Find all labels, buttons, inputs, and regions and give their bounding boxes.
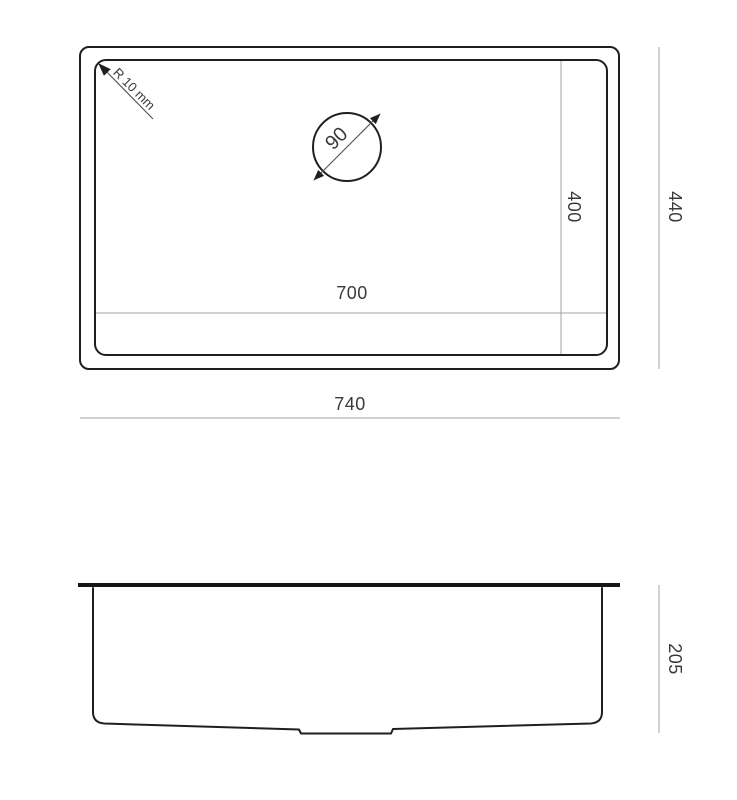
inner-width-label: 700 <box>336 283 368 303</box>
drain-diameter-line-lower <box>314 147 347 180</box>
inner-height-label: 400 <box>564 191 584 223</box>
technical-drawing: R 10 mm 90 400 440 700 740 <box>0 0 737 800</box>
sink-outer-edge <box>80 47 619 369</box>
top-view: R 10 mm 90 400 440 700 740 <box>80 47 685 418</box>
drawing-canvas: R 10 mm 90 400 440 700 740 <box>0 0 737 800</box>
basin-profile <box>93 588 602 734</box>
corner-radius-label: R 10 mm <box>110 65 158 113</box>
sink-bowl-edge <box>95 60 607 355</box>
outer-width-label: 740 <box>334 394 366 414</box>
drain-diameter-line-upper <box>347 114 380 147</box>
drain-diameter-label: 90 <box>321 123 352 154</box>
depth-label: 205 <box>665 643 685 675</box>
outer-height-label: 440 <box>665 191 685 223</box>
side-view: 205 <box>78 585 685 734</box>
